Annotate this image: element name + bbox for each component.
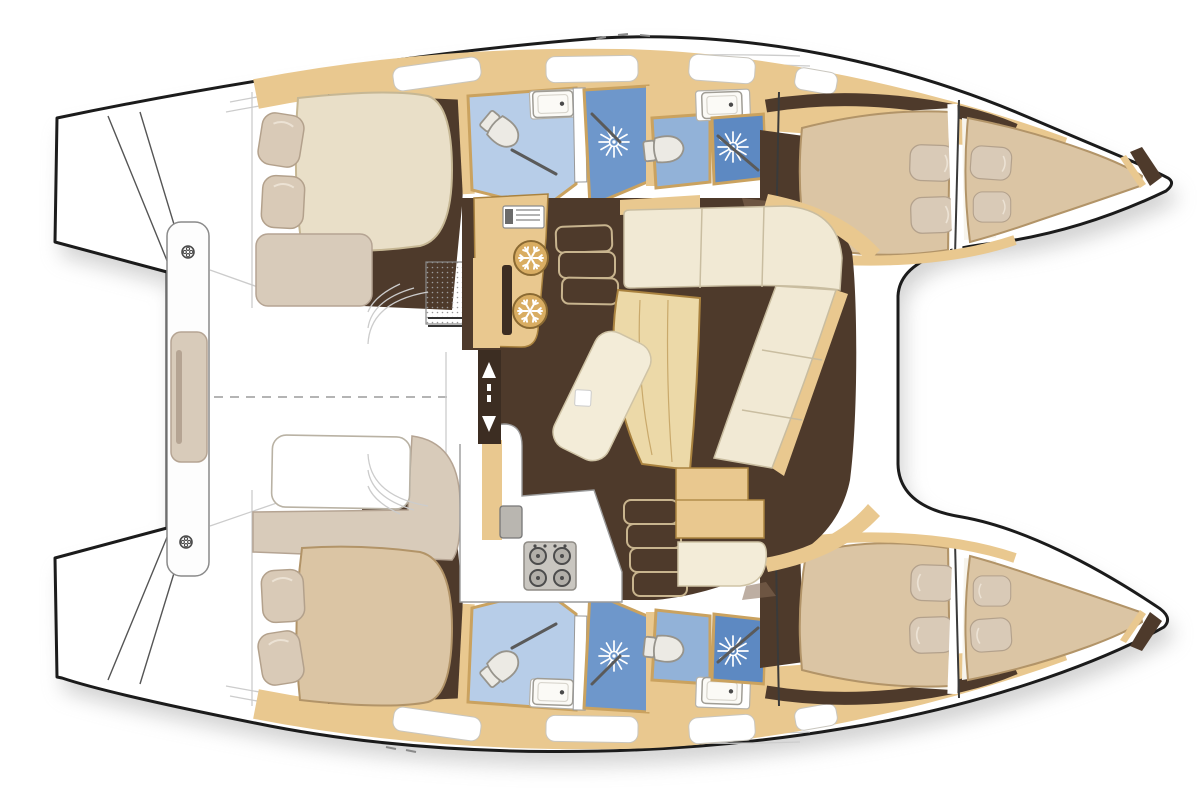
fridge-icon xyxy=(513,294,547,328)
cleat-icon xyxy=(182,246,194,258)
fridge-icon xyxy=(514,241,548,275)
galley-cabinet xyxy=(482,440,502,540)
sink-icon xyxy=(533,678,574,705)
pillow xyxy=(261,175,306,229)
pillow xyxy=(970,145,1013,181)
pillow xyxy=(970,617,1013,653)
starboard-aft-head xyxy=(457,590,652,712)
aft-crossbeam xyxy=(167,222,209,576)
double-berth xyxy=(296,92,452,251)
pillow xyxy=(973,192,1010,222)
sink-basin xyxy=(500,506,522,538)
nav-seat xyxy=(678,542,766,586)
hull-window xyxy=(546,55,638,83)
starboard-aft-cabin xyxy=(252,435,468,706)
catamaran-floorplan xyxy=(0,0,1200,799)
pillow xyxy=(256,111,306,169)
hull-window xyxy=(688,54,756,85)
shower-stall xyxy=(712,614,766,684)
sink-icon xyxy=(702,91,743,118)
oven-icon xyxy=(503,206,544,228)
pillow xyxy=(910,196,955,233)
cleat-icon xyxy=(180,536,192,548)
pillow xyxy=(261,569,306,623)
pillow xyxy=(973,576,1010,606)
port-aft-head xyxy=(457,86,652,208)
double-berth xyxy=(296,547,452,706)
bench-seat xyxy=(256,234,372,306)
pillow xyxy=(909,616,954,653)
catamaran-floorplan-canvas xyxy=(0,0,1200,799)
pillow xyxy=(256,629,306,687)
mast-post xyxy=(575,390,592,407)
galley-handle xyxy=(502,265,512,335)
hull-window xyxy=(688,714,756,745)
white-berth xyxy=(271,435,410,509)
pillow xyxy=(910,564,955,601)
hull-window xyxy=(546,715,638,743)
sink-icon xyxy=(533,90,574,117)
stove-icon xyxy=(524,542,576,590)
companionway-steps-port xyxy=(556,225,619,304)
pillow xyxy=(909,144,954,181)
shower-stall xyxy=(712,114,766,184)
